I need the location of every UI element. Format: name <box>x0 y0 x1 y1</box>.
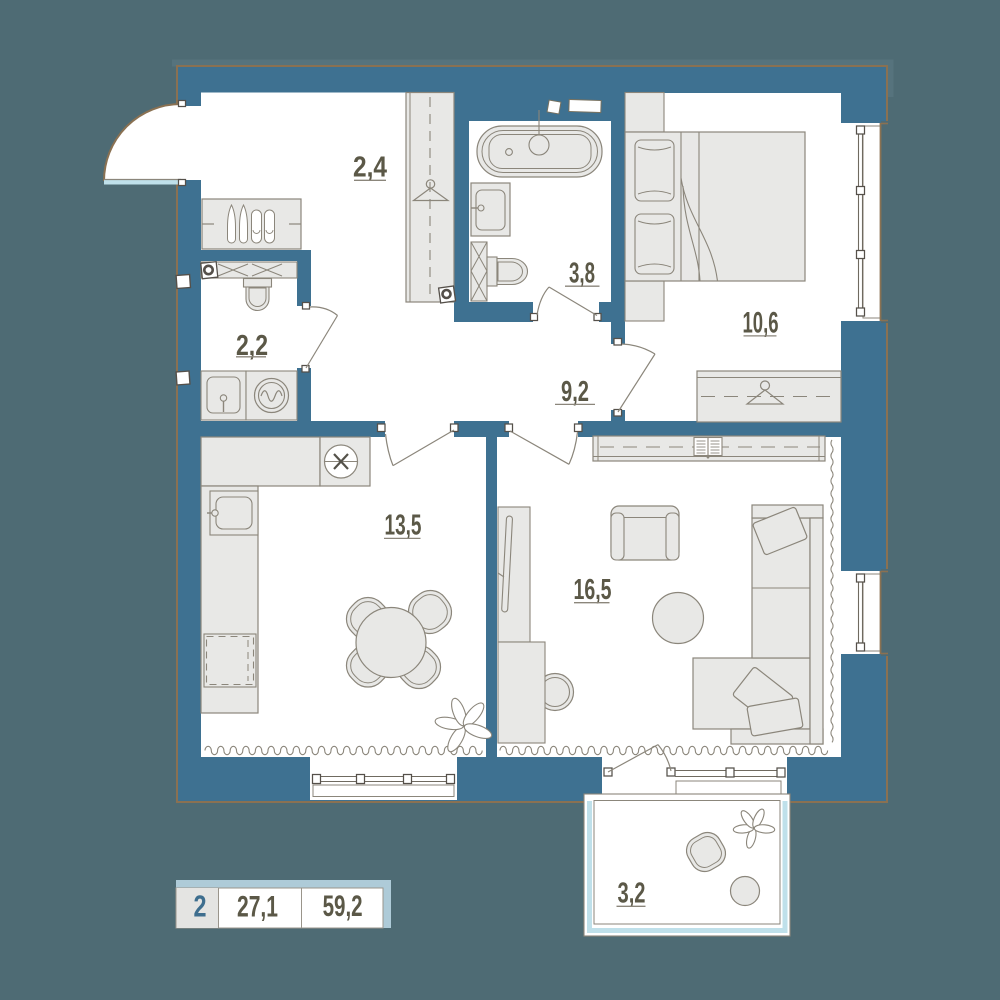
svg-text:9,2: 9,2 <box>561 376 589 408</box>
svg-text:3,2: 3,2 <box>618 878 646 910</box>
svg-text:3,8: 3,8 <box>569 258 595 290</box>
svg-text:2,4: 2,4 <box>353 152 387 184</box>
svg-text:27,1: 27,1 <box>237 890 278 923</box>
svg-text:16,5: 16,5 <box>574 574 612 606</box>
svg-text:59,2: 59,2 <box>323 890 363 923</box>
svg-text:10,6: 10,6 <box>743 307 779 340</box>
svg-text:13,5: 13,5 <box>385 510 422 542</box>
svg-text:2: 2 <box>194 889 207 924</box>
